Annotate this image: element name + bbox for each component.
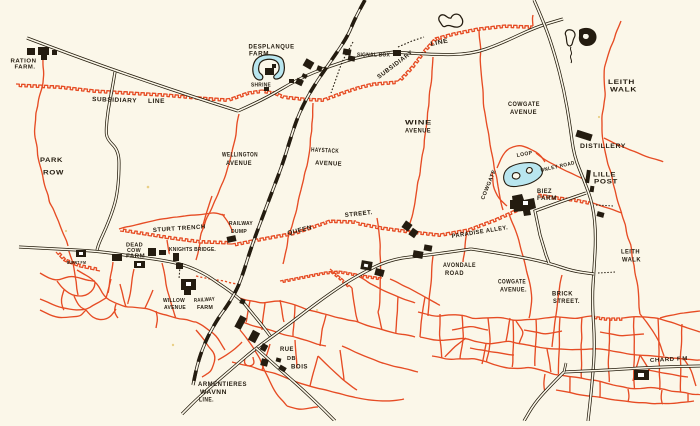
svg-text:WALK: WALK [610,87,637,94]
svg-text:COWGATE: COWGATE [508,101,540,108]
svg-text:WILLOW: WILLOW [163,298,186,304]
svg-text:DUMP: DUMP [231,229,247,235]
svg-text:BOIS: BOIS [291,365,308,371]
svg-text:FARM: FARM [537,196,557,202]
svg-text:LINE: LINE [148,98,165,105]
svg-text:LINE.: LINE. [199,398,214,404]
svg-text:BIEZ: BIEZ [537,189,552,195]
svg-text:LILLE: LILLE [593,173,616,179]
svg-text:BRICK: BRICK [552,292,573,298]
svg-text:PARK: PARK [40,157,63,164]
svg-text:AVENUE.: AVENUE. [500,288,527,294]
svg-text:WELLINGTON: WELLINGTON [222,152,258,159]
svg-text:COWGATE: COWGATE [498,280,526,286]
svg-text:FARM: FARM [126,254,145,260]
svg-text:AVENUE: AVENUE [226,160,252,167]
svg-text:BURNT F M: BURNT F M [67,260,86,266]
svg-text:DISTILLERY: DISTILLERY [580,144,626,150]
svg-text:RUE: RUE [280,347,294,353]
svg-text:STREET.: STREET. [553,299,580,305]
svg-text:DB: DB [287,356,296,362]
svg-text:SIGNAL BOX: SIGNAL BOX [357,53,390,59]
svg-text:HAYSTACK: HAYSTACK [311,147,339,155]
svg-text:FARM: FARM [249,52,269,58]
svg-text:AVENUE: AVENUE [164,305,186,311]
svg-text:FARM: FARM [197,305,213,311]
svg-text:FARM.: FARM. [15,65,36,71]
svg-text:WINE: WINE [405,120,432,127]
svg-text:AVONDALE: AVONDALE [443,263,476,269]
svg-text:WAVNN: WAVNN [200,390,227,396]
svg-text:ARMENTIERES: ARMENTIERES [198,382,247,388]
svg-text:LEITH: LEITH [621,249,640,256]
svg-text:AVENUE: AVENUE [405,128,431,135]
svg-text:DESPLANQUE: DESPLANQUE [249,45,295,51]
svg-text:AVENUE: AVENUE [315,160,342,168]
svg-text:ROAD: ROAD [445,271,464,277]
svg-text:WALK: WALK [622,257,641,264]
svg-text:AVENUE: AVENUE [510,109,537,116]
svg-text:LEITH: LEITH [608,79,635,86]
svg-text:POST: POST [594,180,618,186]
svg-text:SHRINE: SHRINE [251,83,271,89]
svg-text:RAILWAY: RAILWAY [229,221,253,227]
svg-text:ROW: ROW [43,170,64,177]
svg-text:KNIGHTS BRIDGE.: KNIGHTS BRIDGE. [169,247,216,253]
